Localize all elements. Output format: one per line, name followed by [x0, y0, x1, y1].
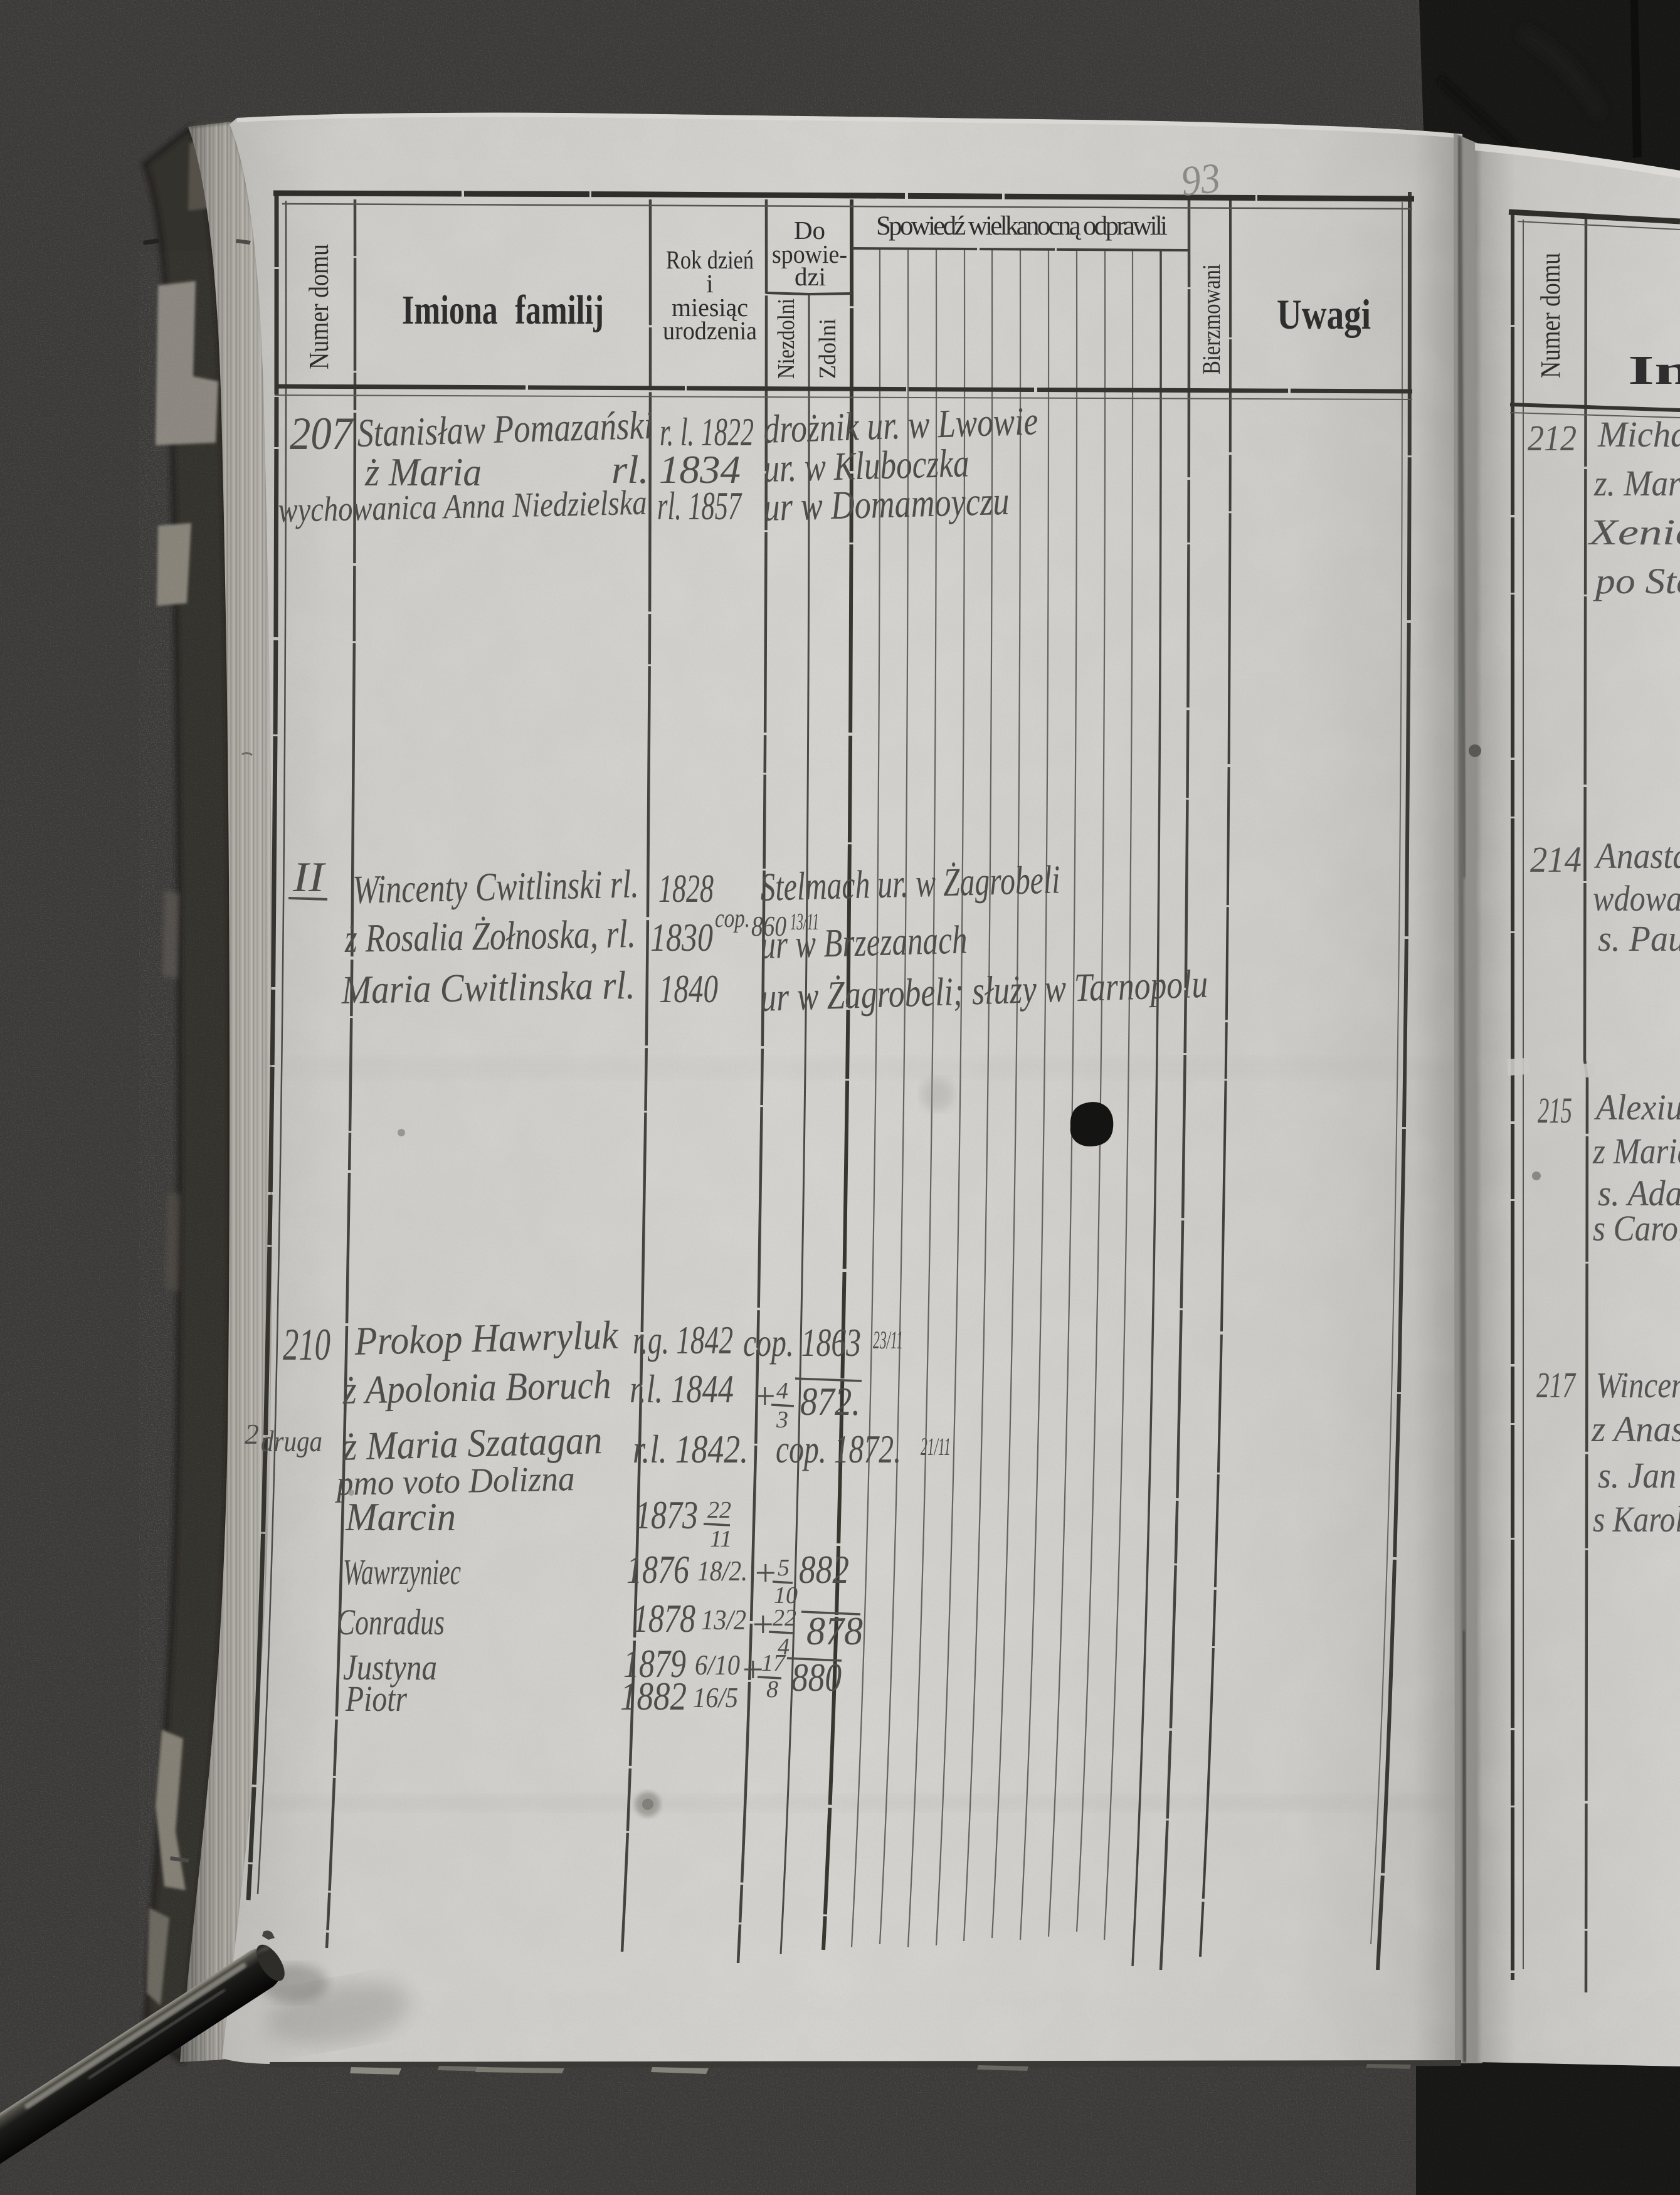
- svg-text:880: 880: [791, 1655, 842, 1700]
- svg-text:22: 22: [707, 1497, 731, 1523]
- svg-text:II: II: [292, 853, 327, 901]
- svg-text:Imiona familij: Imiona familij: [402, 287, 604, 333]
- svg-text:1878: 1878: [633, 1596, 695, 1641]
- svg-text:Bierzmowani: Bierzmowani: [1197, 264, 1225, 374]
- svg-text:217: 217: [1536, 1365, 1576, 1405]
- svg-text:1830: 1830: [650, 915, 713, 960]
- svg-text:Wincenty: Wincenty: [1596, 1365, 1680, 1405]
- svg-text:s Carol: s Carol: [1593, 1208, 1680, 1249]
- svg-text:17: 17: [761, 1650, 786, 1676]
- svg-text:Numer domu: Numer domu: [304, 244, 334, 369]
- svg-text:212: 212: [1528, 418, 1577, 458]
- svg-text:ż Rosalia Żołnoska, rl.: ż Rosalia Żołnoska, rl.: [344, 911, 636, 961]
- svg-text:Piotr: Piotr: [345, 1678, 407, 1719]
- svg-text:ż Apolonia Boruch: ż Apolonia Boruch: [342, 1362, 611, 1412]
- svg-text:ur w Brzezanach: ur w Brzezanach: [760, 917, 968, 967]
- svg-text:18/2.: 18/2.: [697, 1555, 748, 1587]
- svg-text:cop. 1863: cop. 1863: [743, 1320, 861, 1365]
- svg-text:207: 207: [290, 408, 354, 460]
- svg-text:cop. 1872.: cop. 1872.: [776, 1427, 901, 1471]
- svg-text:Imiona: Imiona: [1628, 347, 1680, 393]
- svg-text:dzi: dzi: [795, 262, 826, 291]
- svg-text:1873: 1873: [635, 1493, 698, 1537]
- svg-text:2: 2: [245, 1418, 259, 1450]
- svg-text:21/11: 21/11: [921, 1432, 951, 1461]
- svg-text:Stelmach ur. w Żagrobeli: Stelmach ur. w Żagrobeli: [760, 857, 1061, 909]
- svg-text:wdowa p: wdowa p: [1593, 878, 1680, 919]
- svg-text:872.: 872.: [800, 1379, 860, 1424]
- svg-text:wychowanica Anna Niedzielska: wychowanica Anna Niedzielska: [278, 484, 647, 530]
- svg-text:z Anast: z Anast: [1591, 1409, 1680, 1449]
- svg-text:1876: 1876: [626, 1547, 689, 1592]
- svg-text:1828: 1828: [658, 866, 714, 911]
- svg-text:6/10: 6/10: [695, 1649, 740, 1681]
- svg-text:s. Jan: s. Jan: [1598, 1455, 1676, 1496]
- svg-text:po Stef: po Stef: [1593, 561, 1680, 601]
- svg-text:s. Pau: s. Pau: [1598, 918, 1680, 959]
- svg-text:Uwagi: Uwagi: [1277, 290, 1371, 338]
- svg-text:Niezdolni: Niezdolni: [773, 299, 800, 379]
- svg-text:210: 210: [283, 1320, 330, 1370]
- svg-text:Zdolni: Zdolni: [815, 319, 841, 379]
- svg-text:Stanisław Pomazański: Stanisław Pomazański: [356, 403, 653, 455]
- svg-text:16/5: 16/5: [693, 1681, 738, 1713]
- svg-text:Wincenty Cwitlinski rl.: Wincenty Cwitlinski rl.: [352, 861, 639, 912]
- svg-text:Michał: Michał: [1597, 414, 1680, 455]
- svg-text:Numer domu: Numer domu: [1535, 253, 1566, 378]
- svg-text:8: 8: [766, 1676, 778, 1703]
- svg-text:215: 215: [1538, 1090, 1572, 1131]
- svg-text:r.l. 1844: r.l. 1844: [630, 1367, 734, 1411]
- svg-text:214: 214: [1530, 839, 1582, 880]
- svg-text:Prokop Hawryluk: Prokop Hawryluk: [354, 1313, 620, 1363]
- svg-text:ur w Domamoyczu: ur w Domamoyczu: [763, 479, 1010, 529]
- svg-text:Conradus: Conradus: [337, 1602, 445, 1642]
- svg-text:5: 5: [778, 1555, 790, 1581]
- svg-text:23/11: 23/11: [873, 1326, 903, 1354]
- svg-text:11: 11: [710, 1526, 732, 1552]
- svg-text:1882: 1882: [620, 1674, 687, 1718]
- svg-text:r.l. 1842.: r.l. 1842.: [633, 1427, 748, 1471]
- svg-text:Alexius: Alexius: [1593, 1087, 1680, 1128]
- svg-text:rl. 1857: rl. 1857: [657, 484, 742, 528]
- svg-text:druga: druga: [261, 1425, 322, 1458]
- svg-text:z Maria: z Maria: [1592, 1131, 1680, 1172]
- svg-text:s Karol: s Karol: [1593, 1499, 1680, 1540]
- svg-text:+: +: [752, 1375, 778, 1417]
- svg-text:Spowiedź wielkanocną odprawili: Spowiedź wielkanocną odprawili: [876, 211, 1168, 241]
- svg-text:z. Maria: z. Maria: [1593, 463, 1680, 504]
- svg-text:4: 4: [776, 1378, 788, 1404]
- svg-text:Wawrzyniec: Wawrzyniec: [343, 1552, 461, 1592]
- svg-text:Maria Cwitlinska rl.: Maria Cwitlinska rl.: [341, 963, 635, 1012]
- svg-text:Xenia: Xenia: [1587, 512, 1680, 553]
- svg-text:13/2: 13/2: [701, 1604, 746, 1636]
- svg-text:cop.: cop.: [715, 904, 750, 933]
- svg-text:Anastaz: Anastaz: [1593, 835, 1680, 876]
- svg-text:882: 882: [799, 1547, 849, 1592]
- svg-text:93: 93: [1179, 154, 1223, 205]
- svg-text:878: 878: [806, 1609, 863, 1653]
- svg-text:1840: 1840: [659, 966, 718, 1011]
- svg-text:+: +: [750, 1604, 776, 1645]
- svg-text:r.g. 1842: r.g. 1842: [633, 1318, 733, 1362]
- svg-text:Marcin: Marcin: [345, 1494, 456, 1539]
- svg-text:22: 22: [773, 1605, 796, 1631]
- svg-text:urodzenia: urodzenia: [663, 316, 757, 345]
